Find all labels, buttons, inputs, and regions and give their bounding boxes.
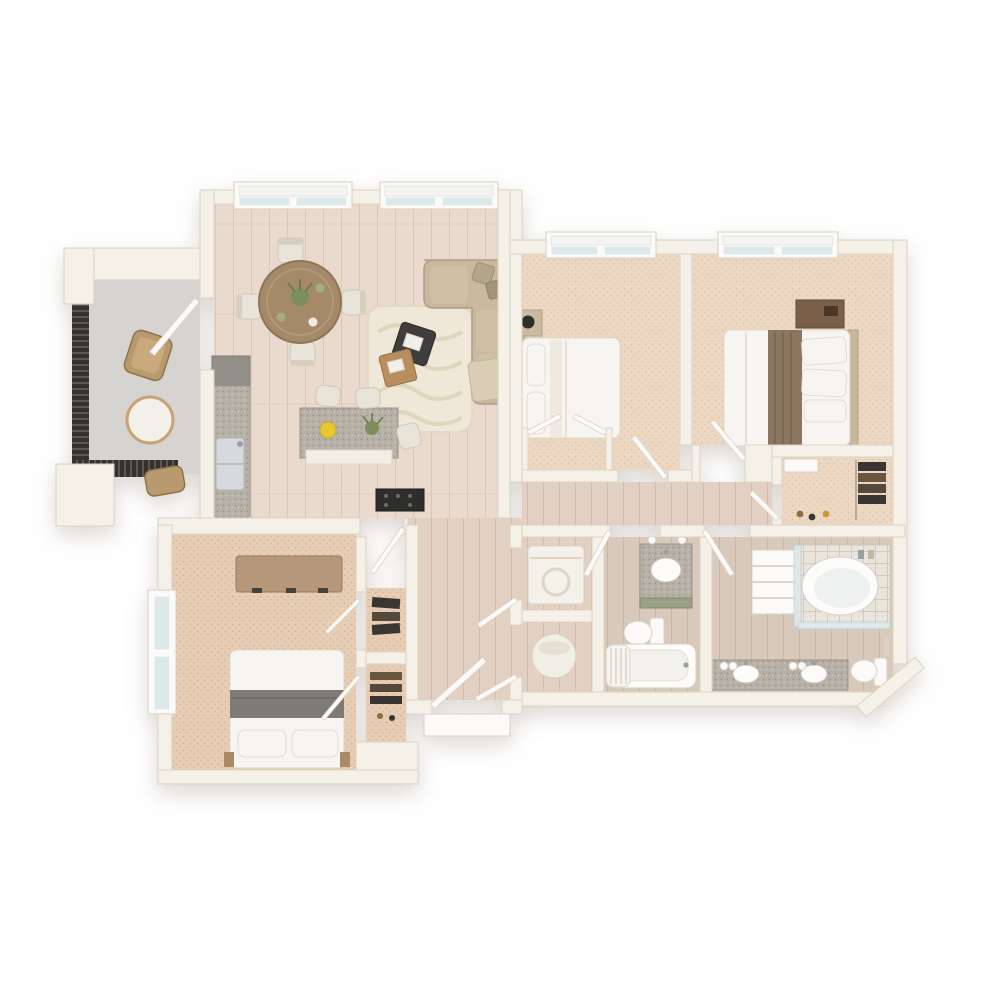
bedroom-lower-window <box>148 590 176 714</box>
tub-faucet <box>683 662 688 667</box>
dining-chair <box>290 342 315 366</box>
double-vanity <box>712 660 848 690</box>
shoes <box>377 713 383 719</box>
hanging-clothes <box>858 462 886 471</box>
dresser <box>236 556 342 593</box>
interior-wall <box>510 525 522 548</box>
living-window <box>234 182 352 209</box>
towel-bar <box>884 636 889 656</box>
shelf-items <box>370 684 402 692</box>
shoes <box>823 511 830 518</box>
vanity-light <box>720 662 728 670</box>
dining-chair <box>278 238 303 263</box>
interior-wall <box>772 445 893 457</box>
dining-chair <box>236 294 261 319</box>
range <box>376 489 424 511</box>
bed-pillow <box>527 344 545 386</box>
hanging-clothes <box>858 473 886 482</box>
interior-wall <box>406 525 418 714</box>
plate <box>316 284 325 293</box>
interior-wall <box>522 610 592 622</box>
corridor-floor <box>522 482 772 525</box>
backsplash-panel <box>212 356 250 386</box>
island-cabinets <box>306 450 392 464</box>
entry-door-frame <box>424 714 510 736</box>
shampoo-bottle <box>858 550 864 559</box>
interior-wall <box>750 525 905 537</box>
lemon-plate <box>320 422 336 438</box>
kitchen-sink <box>216 438 244 490</box>
interior-wall <box>356 742 418 770</box>
exterior-wall <box>893 240 907 664</box>
balcony-chair-partial <box>144 465 186 497</box>
shoes <box>797 511 804 518</box>
balcony-railing-left <box>72 300 89 476</box>
vanity <box>640 536 692 608</box>
faucet <box>812 661 817 666</box>
linen-shelves <box>752 550 796 614</box>
kitchen-island <box>300 408 398 464</box>
bed <box>724 330 858 446</box>
closet-shelf <box>784 459 818 472</box>
vanity-light <box>648 536 656 544</box>
bedroom-lower <box>224 556 350 768</box>
interior-wall <box>366 652 406 664</box>
plate <box>277 313 286 322</box>
shower-glass <box>794 545 801 627</box>
exterior-wall <box>158 770 418 784</box>
exterior-wall <box>200 190 214 298</box>
balcony-table <box>127 397 173 443</box>
interior-wall <box>522 470 618 482</box>
interior-wall <box>522 525 610 537</box>
interior-wall <box>660 525 705 537</box>
floor-plan-canvas <box>0 0 1000 1000</box>
interior-wall <box>498 190 510 518</box>
bedroom-middle-window <box>546 232 656 258</box>
hanging-clothes <box>372 623 401 635</box>
sofa-cushion <box>430 266 468 304</box>
sink <box>651 558 681 582</box>
bedroom-lower-door[interactable] <box>370 527 405 574</box>
floor-plan <box>56 182 924 784</box>
shelf-items <box>370 696 402 704</box>
exterior-wall <box>200 370 214 532</box>
exterior-wall <box>510 692 884 706</box>
water-heater-closet <box>532 634 576 678</box>
hanging-clothes <box>858 495 886 504</box>
vanity-light <box>729 662 737 670</box>
hanging-clothes <box>372 597 401 609</box>
shower-glass <box>798 622 890 629</box>
plate <box>309 318 318 327</box>
nightstand-decor <box>824 306 838 316</box>
hanging-clothes <box>372 612 400 621</box>
corner-shower-tub <box>794 545 890 629</box>
table-lamp <box>522 316 535 329</box>
bed-pillow <box>801 369 846 397</box>
faucet <box>237 441 243 447</box>
shower-curtain <box>606 645 630 687</box>
bedroom-primary-window <box>718 232 838 258</box>
floor-plan-svg <box>0 0 1000 1000</box>
bed-post <box>224 752 234 767</box>
interior-wall <box>745 445 772 482</box>
interior-wall <box>510 190 522 482</box>
interior-wall <box>680 254 692 445</box>
bed-pillow <box>292 730 338 757</box>
faucet <box>744 661 749 666</box>
bar-stool <box>315 385 341 407</box>
living-window <box>380 182 498 209</box>
interior-wall <box>700 537 712 692</box>
dining-chair <box>342 290 366 315</box>
bed-pillow <box>804 400 846 422</box>
vanity-light <box>798 662 806 670</box>
interior-wall <box>772 457 782 485</box>
exterior-wall <box>502 700 522 714</box>
bed-pillow <box>238 730 286 757</box>
laundry-closet <box>528 546 584 604</box>
bed-runner <box>768 330 802 446</box>
roller-shade <box>723 236 833 245</box>
interior-wall <box>692 445 700 482</box>
interior-wall <box>158 518 360 534</box>
shoes <box>389 715 395 721</box>
hanging-clothes <box>858 484 886 493</box>
faucet <box>663 549 668 554</box>
balcony-wall-stub <box>64 248 94 304</box>
bed-pillow <box>801 336 847 365</box>
roller-shade <box>551 236 651 245</box>
interior-wall <box>356 650 366 668</box>
balcony-corner-wall <box>56 464 114 526</box>
shampoo-bottle <box>868 550 874 559</box>
closet-bedroom-middle-floor <box>528 434 606 470</box>
bar-stool <box>355 387 380 409</box>
roller-shade <box>385 186 493 196</box>
bed <box>516 336 620 440</box>
interior-wall <box>668 470 692 482</box>
roller-shade <box>239 186 347 196</box>
shelf-items <box>370 672 402 680</box>
water-heater <box>532 634 576 678</box>
bed-post <box>340 752 350 767</box>
bathtub <box>606 644 696 688</box>
interior-wall <box>356 537 366 592</box>
vanity-light <box>789 662 797 670</box>
shoes <box>809 514 816 521</box>
exterior-wall <box>406 700 432 714</box>
vanity-cabinet <box>640 598 692 608</box>
